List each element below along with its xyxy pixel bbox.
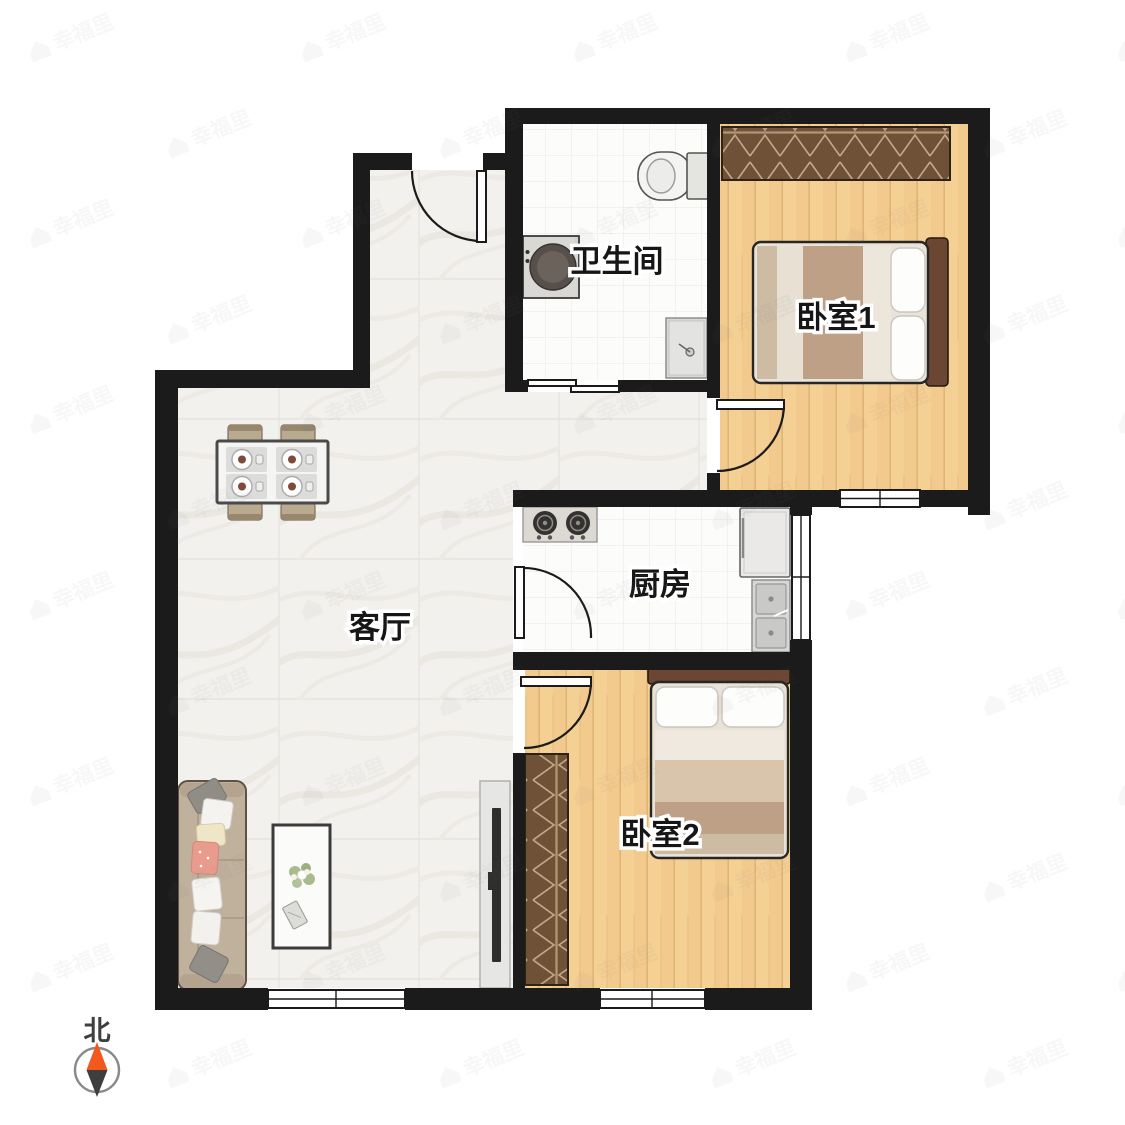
window-bedroom1 <box>840 490 920 507</box>
fridge <box>740 508 790 577</box>
coffee-table <box>273 825 330 948</box>
room-label-living-room: 客厅 <box>349 610 411 645</box>
stove <box>523 507 597 542</box>
wardrobe-bedroom2 <box>525 754 568 985</box>
bathroom-sink <box>666 318 707 378</box>
hallway-floor <box>505 392 707 493</box>
bathroom-sliding-door <box>528 380 619 392</box>
window-bedroom2 <box>600 990 705 1008</box>
room-label-kitchen: 厨房 <box>629 567 691 602</box>
window-living-room <box>268 990 405 1008</box>
wardrobe-bedroom1 <box>722 127 950 180</box>
toilet <box>638 152 710 200</box>
compass: 北 <box>75 1016 119 1097</box>
room-label-bedroom2: 卧室2 <box>620 817 699 852</box>
floor-plan-canvas: 幸福里 幸福里 <box>0 0 1125 1125</box>
sofa <box>178 777 246 990</box>
compass-south-arrow-icon <box>87 1070 108 1097</box>
floor-plan-image: 幸福里 幸福里 <box>0 0 1125 1125</box>
tv-stand <box>480 781 510 988</box>
compass-north-label: 北 <box>84 1016 111 1046</box>
compass-north-arrow-icon <box>87 1042 108 1070</box>
kitchen-sink <box>752 580 790 652</box>
window-kitchen <box>792 515 810 640</box>
room-label-bathroom: 卫生间 <box>571 244 664 279</box>
room-label-bedroom1: 卧室1 <box>796 300 875 335</box>
